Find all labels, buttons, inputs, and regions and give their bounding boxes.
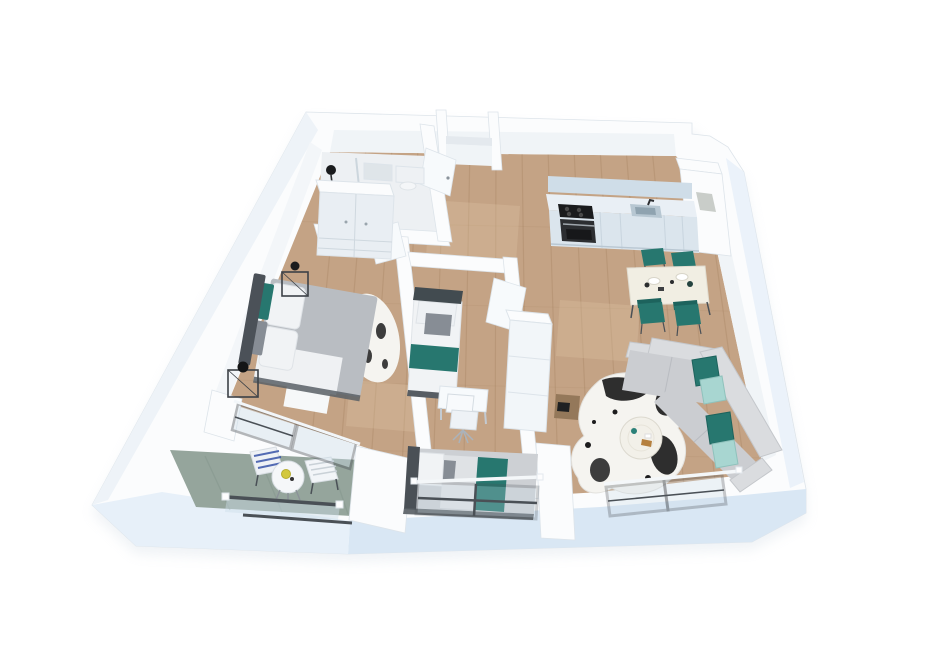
cooktop: [558, 204, 594, 219]
sofa-pillow-teal: [706, 412, 734, 444]
table-lamp: [238, 362, 249, 373]
sofa-pillow-aqua: [700, 376, 726, 404]
teal-blanket: [409, 344, 459, 372]
window-pier-living-left: [536, 443, 575, 540]
table-lamp: [291, 262, 300, 271]
gray-cushion: [424, 313, 452, 336]
single-bed-top: [407, 287, 463, 400]
coffee-table: [620, 417, 662, 459]
oven: [560, 219, 596, 243]
sofa-pillow-aqua: [712, 440, 738, 468]
bedroom2-window: [416, 482, 538, 519]
back-wall-inner-face: [330, 130, 676, 156]
tv-device: [557, 402, 570, 412]
balcony-table: [272, 461, 304, 503]
yellow-accent-item: [282, 470, 291, 479]
door-handle: [446, 176, 449, 179]
sideboard: [504, 310, 552, 432]
floorplan-3d-scene: [0, 0, 945, 664]
wardrobe: [316, 180, 394, 259]
floorplan-render-canvas: [0, 0, 945, 664]
window-pier-balcony-right: [349, 446, 412, 533]
media-stool: [554, 394, 580, 420]
